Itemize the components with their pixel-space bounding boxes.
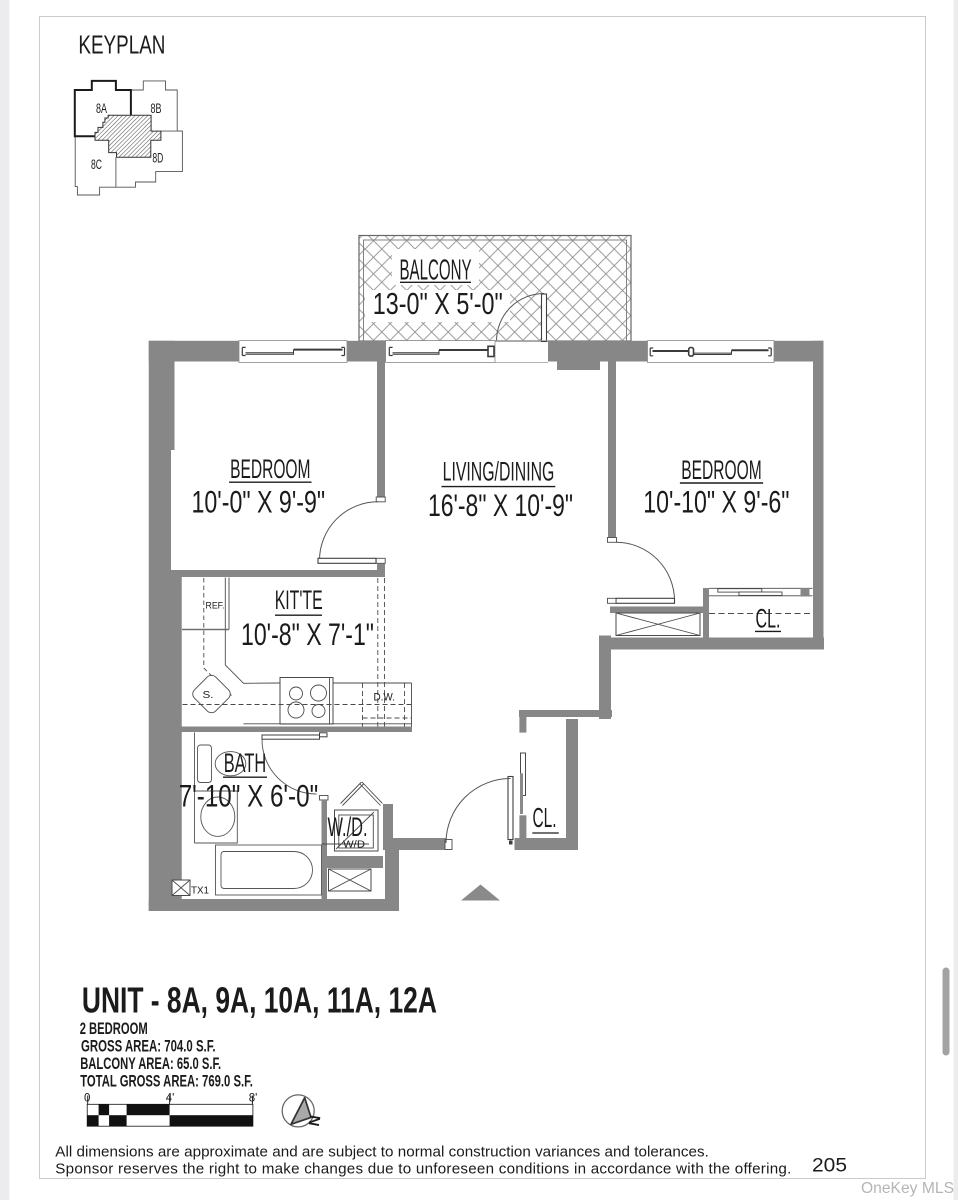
svg-text:W./D.: W./D. <box>328 811 368 842</box>
svg-text:BATH: BATH <box>224 747 267 778</box>
svg-text:BEDROOM: BEDROOM <box>681 454 761 485</box>
svg-text:All dimensions are approximate: All dimensions are approximate and are s… <box>55 1144 709 1161</box>
svg-text:8C: 8C <box>91 157 102 172</box>
svg-text:8B: 8B <box>151 101 162 116</box>
svg-text:205: 205 <box>812 1155 847 1177</box>
svg-text:10'-10" X 9'-6": 10'-10" X 9'-6" <box>643 485 789 520</box>
svg-text:13-0" X 5'-0": 13-0" X 5'-0" <box>373 286 503 321</box>
svg-text:D.W.: D.W. <box>374 692 396 704</box>
svg-text:0: 0 <box>84 1093 90 1105</box>
svg-text:8': 8' <box>249 1093 258 1105</box>
svg-text:KIT'TE: KIT'TE <box>275 584 323 615</box>
svg-text:CL.: CL. <box>756 603 781 634</box>
svg-text:7'-10" X 6'-0": 7'-10" X 6'-0" <box>179 779 319 814</box>
svg-text:2 BEDROOM: 2 BEDROOM <box>80 1020 148 1038</box>
svg-text:TOTAL GROSS AREA: 769.0 S.F.: TOTAL GROSS AREA: 769.0 S.F. <box>80 1073 253 1091</box>
svg-text:BALCONY AREA: 65.0 S.F.: BALCONY AREA: 65.0 S.F. <box>80 1055 221 1073</box>
svg-text:TX1: TX1 <box>191 886 209 897</box>
svg-text:GROSS AREA: 704.0 S.F.: GROSS AREA: 704.0 S.F. <box>81 1038 216 1056</box>
svg-text:W/D: W/D <box>343 839 365 851</box>
svg-text:10'-0" X 9'-9": 10'-0" X 9'-9" <box>192 485 326 520</box>
svg-text:CL.: CL. <box>533 802 557 833</box>
svg-text:8D: 8D <box>152 150 163 165</box>
svg-text:BEDROOM: BEDROOM <box>230 453 310 484</box>
svg-text:REF.: REF. <box>206 601 225 612</box>
svg-text:S.: S. <box>203 689 214 701</box>
svg-text:10'-8" X 7'-1": 10'-8" X 7'-1" <box>241 617 374 652</box>
svg-text:16'-8" X 10'-9": 16'-8" X 10'-9" <box>428 488 573 523</box>
svg-text:UNIT - 8A, 9A, 10A, 11A, 12A: UNIT - 8A, 9A, 10A, 11A, 12A <box>82 979 437 1020</box>
svg-text:KEYPLAN: KEYPLAN <box>78 31 165 59</box>
svg-text:LIVING/DINING: LIVING/DINING <box>443 456 555 487</box>
svg-text:Sponsor reserves the right to: Sponsor reserves the right to make chang… <box>55 1161 791 1178</box>
svg-text:8A: 8A <box>96 101 107 116</box>
svg-text:OneKey MLS: OneKey MLS <box>861 1180 954 1197</box>
